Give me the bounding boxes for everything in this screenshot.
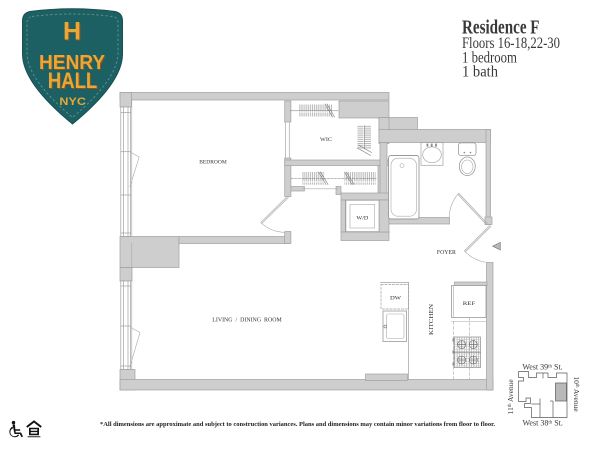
svg-text:WIC: WIC bbox=[320, 137, 332, 143]
svg-text:10th Avenue: 10th Avenue bbox=[572, 376, 581, 412]
svg-text:DW: DW bbox=[390, 296, 402, 302]
svg-text:REF: REF bbox=[463, 301, 476, 307]
svg-text:*All dimensions are approximat: *All dimensions are approximate and subj… bbox=[100, 422, 496, 428]
svg-text:KITCHEN: KITCHEN bbox=[429, 303, 435, 335]
svg-text:HALL: HALL bbox=[48, 68, 98, 93]
svg-text:BEDROOM: BEDROOM bbox=[199, 159, 227, 165]
svg-text:West 39th St.: West 39th St. bbox=[522, 363, 562, 372]
svg-text:NYC: NYC bbox=[59, 96, 86, 108]
svg-text:1 bath: 1 bath bbox=[462, 64, 498, 81]
svg-text:FOYER: FOYER bbox=[437, 249, 457, 256]
svg-text:West 38th St.: West 38th St. bbox=[523, 419, 563, 428]
svg-text:LIVING / DINING ROOM: LIVING / DINING ROOM bbox=[212, 317, 282, 323]
svg-text:11th Avenue: 11th Avenue bbox=[506, 379, 515, 415]
svg-text:H: H bbox=[63, 18, 81, 46]
svg-text:W/D: W/D bbox=[356, 215, 368, 221]
